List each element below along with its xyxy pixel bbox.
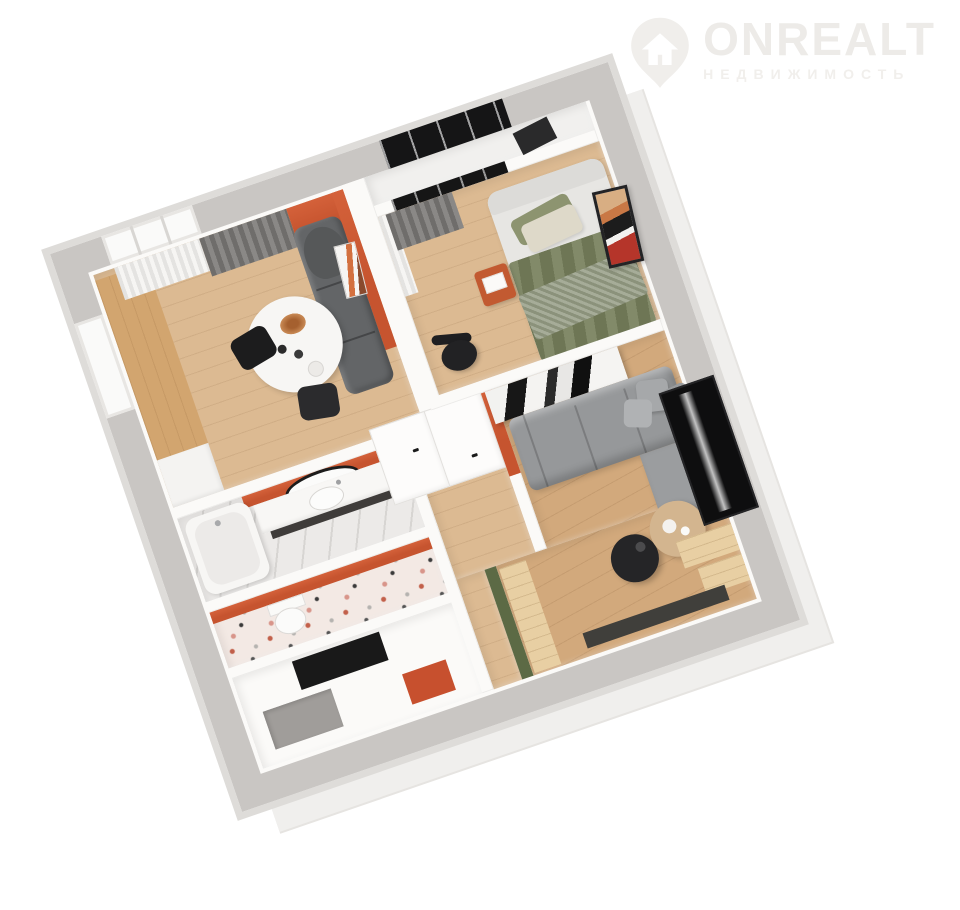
sofa-seat-divider — [574, 405, 598, 470]
table-cup — [293, 348, 304, 359]
window-mullion — [160, 215, 173, 244]
coffee-table-decor — [634, 540, 647, 553]
brand-name: ONREALT — [703, 16, 936, 62]
brand-watermark: ONREALT НЕДВИЖИМОСТЬ — [629, 16, 936, 90]
brand-subtitle: НЕДВИЖИМОСТЬ — [703, 66, 910, 82]
coffee-table-cup — [680, 525, 691, 536]
bathtub-basin — [191, 508, 264, 588]
sofa-armrest-seam — [522, 415, 549, 488]
house-location-pin-icon — [629, 16, 691, 90]
apartment-plan — [50, 62, 800, 812]
watermark-text: ONREALT НЕДВИЖИМОСТЬ — [703, 16, 936, 82]
table-plate — [306, 359, 326, 379]
door-handle — [412, 448, 419, 453]
dining-chair — [296, 382, 341, 422]
dried-flower-decor — [277, 310, 308, 337]
sofa-pillow — [624, 399, 652, 427]
nightstand-book — [482, 272, 508, 294]
door-handle — [471, 453, 478, 458]
window-mullion — [129, 226, 142, 255]
coffee-table-plate — [660, 517, 678, 535]
table-cup — [276, 344, 287, 355]
floor-plan-scene: ONREALT НЕДВИЖИМОСТЬ — [0, 0, 960, 910]
